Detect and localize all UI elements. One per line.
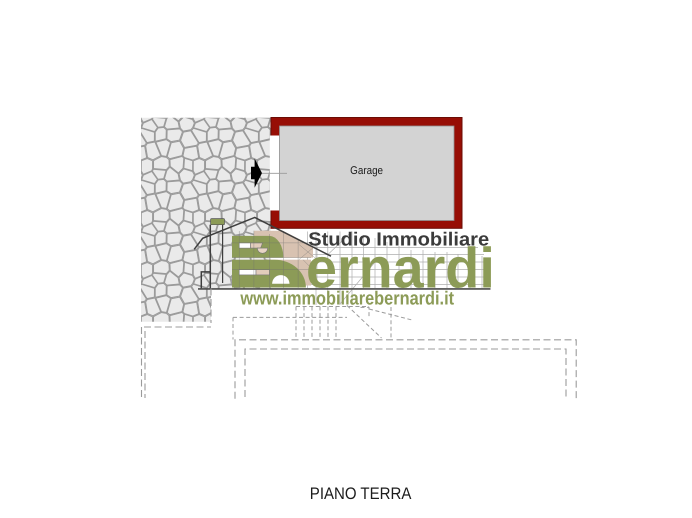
svg-text:Garage: Garage — [350, 165, 383, 177]
svg-text:PIANO TERRA: PIANO TERRA — [310, 484, 412, 503]
